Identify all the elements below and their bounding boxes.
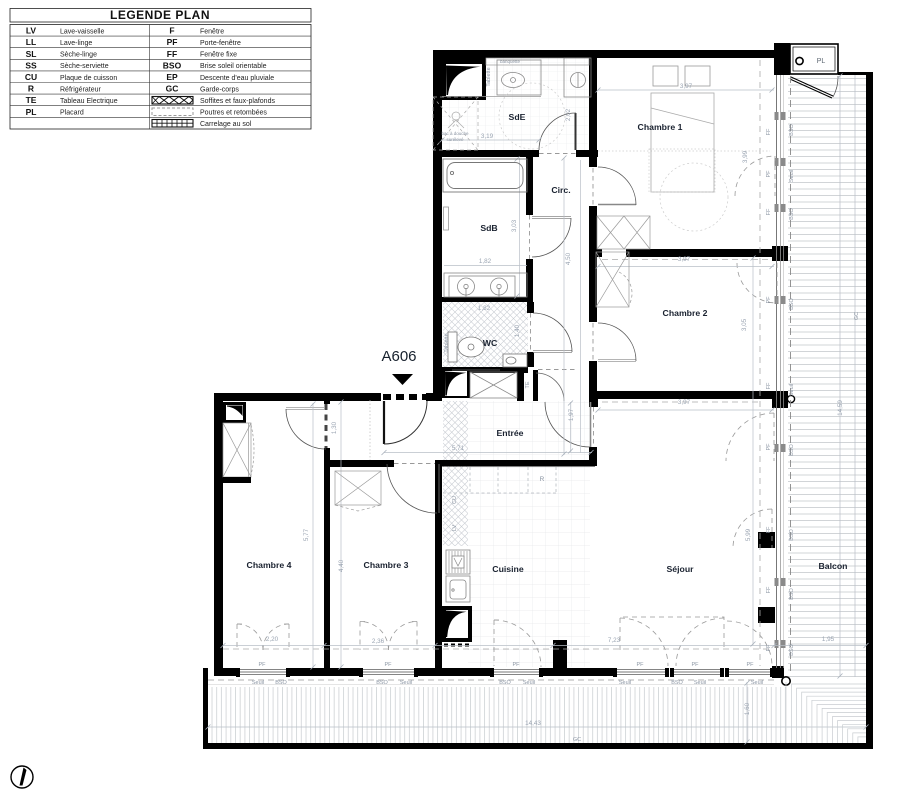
svg-text:5,77: 5,77 [303, 528, 310, 541]
svg-text:PF: PF [766, 296, 772, 304]
svg-text:R: R [540, 476, 545, 483]
svg-text:Descente d'eau pluviale: Descente d'eau pluviale [200, 75, 274, 82]
svg-text:Circ.: Circ. [551, 185, 570, 195]
svg-text:SdB: SdB [480, 223, 497, 233]
svg-text:LV: LV [452, 525, 458, 532]
svg-text:Seuil: Seuil [523, 680, 535, 686]
svg-text:Carrelage au sol: Carrelage au sol [200, 121, 252, 128]
svg-text:FF: FF [766, 128, 772, 135]
svg-text:Soffites et faux-plafonds: Soffites et faux-plafonds [200, 98, 275, 105]
svg-text:7,23: 7,23 [608, 637, 621, 644]
svg-text:Séjour: Séjour [666, 564, 694, 574]
svg-text:PF: PF [636, 662, 644, 668]
svg-text:Seuil: Seuil [619, 680, 631, 686]
svg-text:Lave-vaisselle: Lave-vaisselle [60, 28, 104, 35]
svg-text:GC: GC [854, 312, 860, 320]
svg-text:PF: PF [746, 662, 754, 668]
svg-text:SdE: SdE [509, 112, 526, 122]
svg-text:F: F [169, 26, 174, 36]
svg-text:BSO: BSO [789, 123, 795, 135]
svg-text:Seuil: Seuil [789, 384, 795, 396]
svg-text:4,40: 4,40 [338, 559, 345, 572]
svg-text:FF: FF [766, 644, 772, 651]
svg-text:3,05: 3,05 [741, 318, 748, 331]
svg-text:R: R [28, 84, 34, 94]
svg-text:BSO: BSO [789, 443, 795, 455]
svg-text:SS: SS [25, 60, 37, 70]
svg-text:TE: TE [525, 381, 531, 388]
svg-text:SL: SL [26, 49, 37, 59]
svg-text:Seuil: Seuil [751, 680, 763, 686]
svg-text:3,97: 3,97 [678, 256, 691, 263]
svg-text:Placard: Placard [60, 110, 84, 117]
svg-text:1,60: 1,60 [744, 702, 751, 715]
svg-text:Cuisine: Cuisine [492, 564, 524, 574]
svg-text:FF: FF [766, 208, 772, 215]
svg-text:EP: EP [166, 72, 178, 82]
svg-text:PF: PF [512, 662, 520, 668]
svg-text:5,99: 5,99 [745, 528, 752, 541]
svg-text:FF: FF [766, 382, 772, 389]
svg-text:LV: LV [26, 26, 37, 36]
svg-text:Fenêtre: Fenêtre [200, 28, 224, 35]
svg-text:BSO: BSO [789, 587, 795, 599]
svg-text:1,30: 1,30 [331, 421, 338, 434]
svg-text:BSO: BSO [789, 297, 795, 309]
svg-text:A606: A606 [381, 348, 416, 365]
svg-text:CU: CU [452, 496, 458, 504]
svg-text:3,97: 3,97 [680, 83, 693, 90]
svg-text:PF: PF [384, 662, 392, 668]
svg-text:PF: PF [766, 443, 772, 451]
svg-text:GC: GC [573, 737, 581, 743]
svg-text:PF: PF [691, 662, 699, 668]
svg-text:BSO: BSO [499, 680, 511, 686]
svg-text:2,20: 2,20 [266, 636, 279, 643]
svg-text:Tablette: Tablette [486, 67, 492, 86]
svg-text:1,97: 1,97 [568, 408, 575, 421]
svg-text:Poutres et retombées: Poutres et retombées [200, 110, 267, 117]
svg-text:Seuil: Seuil [400, 680, 412, 686]
svg-text:Réfrigérateur: Réfrigérateur [60, 86, 102, 93]
svg-text:BSO: BSO [789, 528, 795, 540]
svg-text:1,95: 1,95 [822, 636, 835, 643]
svg-text:3,19: 3,19 [481, 133, 494, 140]
svg-text:3,99: 3,99 [742, 150, 749, 163]
svg-text:14,43: 14,43 [525, 720, 541, 727]
svg-text:Tablette: Tablette [444, 333, 450, 352]
svg-text:PF: PF [167, 37, 178, 47]
svg-text:TE: TE [26, 95, 37, 105]
svg-text:GC: GC [166, 84, 179, 94]
svg-text:Lave-linge: Lave-linge [60, 40, 92, 47]
svg-text:BSO: BSO [376, 680, 388, 686]
svg-text:2,36: 2,36 [372, 638, 385, 645]
svg-text:BSO: BSO [275, 680, 287, 686]
svg-text:surélevé: surélevé [446, 137, 464, 142]
svg-text:Chambre 3: Chambre 3 [364, 560, 409, 570]
svg-text:1,40: 1,40 [514, 324, 521, 337]
svg-text:Seuil: Seuil [789, 170, 795, 182]
svg-text:Tableau Electrique: Tableau Electrique [60, 98, 118, 105]
svg-text:Chambre 1: Chambre 1 [638, 122, 683, 132]
svg-text:BSO: BSO [163, 60, 182, 70]
svg-text:3,97: 3,97 [678, 399, 691, 406]
svg-text:Porte-fenêtre: Porte-fenêtre [200, 40, 241, 47]
svg-text:Chambre 4: Chambre 4 [247, 560, 292, 570]
svg-text:Seuil: Seuil [252, 680, 264, 686]
svg-text:PL: PL [817, 58, 826, 65]
svg-text:Seuil: Seuil [694, 680, 706, 686]
svg-text:3,03: 3,03 [511, 219, 518, 232]
svg-text:banquette: banquette [500, 59, 521, 64]
svg-text:Fenêtre fixe: Fenêtre fixe [200, 52, 237, 59]
svg-text:LL: LL [26, 37, 36, 47]
svg-text:FF: FF [766, 526, 772, 533]
svg-text:Entrée: Entrée [496, 428, 523, 438]
svg-text:Plaque de cuisson: Plaque de cuisson [60, 75, 117, 82]
svg-text:WC: WC [483, 338, 498, 348]
svg-text:1,82: 1,82 [479, 258, 492, 265]
svg-text:Sèche-serviette: Sèche-serviette [60, 63, 109, 70]
svg-text:Brise soleil orientable: Brise soleil orientable [200, 63, 267, 70]
svg-text:PF: PF [258, 662, 266, 668]
svg-text:1,82: 1,82 [478, 305, 491, 312]
svg-text:2,02: 2,02 [565, 108, 572, 121]
svg-text:BSO: BSO [789, 207, 795, 219]
svg-text:PL: PL [26, 107, 37, 117]
svg-text:BSO: BSO [671, 680, 683, 686]
svg-text:5,71: 5,71 [452, 445, 465, 452]
svg-text:14,59: 14,59 [837, 400, 844, 416]
svg-text:Balcon: Balcon [819, 561, 848, 571]
svg-text:Garde-corps: Garde-corps [200, 86, 239, 93]
svg-text:Chambre 2: Chambre 2 [663, 308, 708, 318]
svg-text:BSO: BSO [789, 643, 795, 655]
svg-text:4,50: 4,50 [565, 252, 572, 265]
svg-text:Sèche-linge: Sèche-linge [60, 52, 97, 59]
svg-text:PF: PF [766, 170, 772, 178]
svg-text:LEGENDE PLAN: LEGENDE PLAN [110, 8, 210, 22]
svg-text:CU: CU [25, 72, 37, 82]
svg-text:FF: FF [167, 49, 177, 59]
svg-text:FF: FF [766, 586, 772, 593]
svg-text:bac à douche: bac à douche [441, 131, 469, 136]
